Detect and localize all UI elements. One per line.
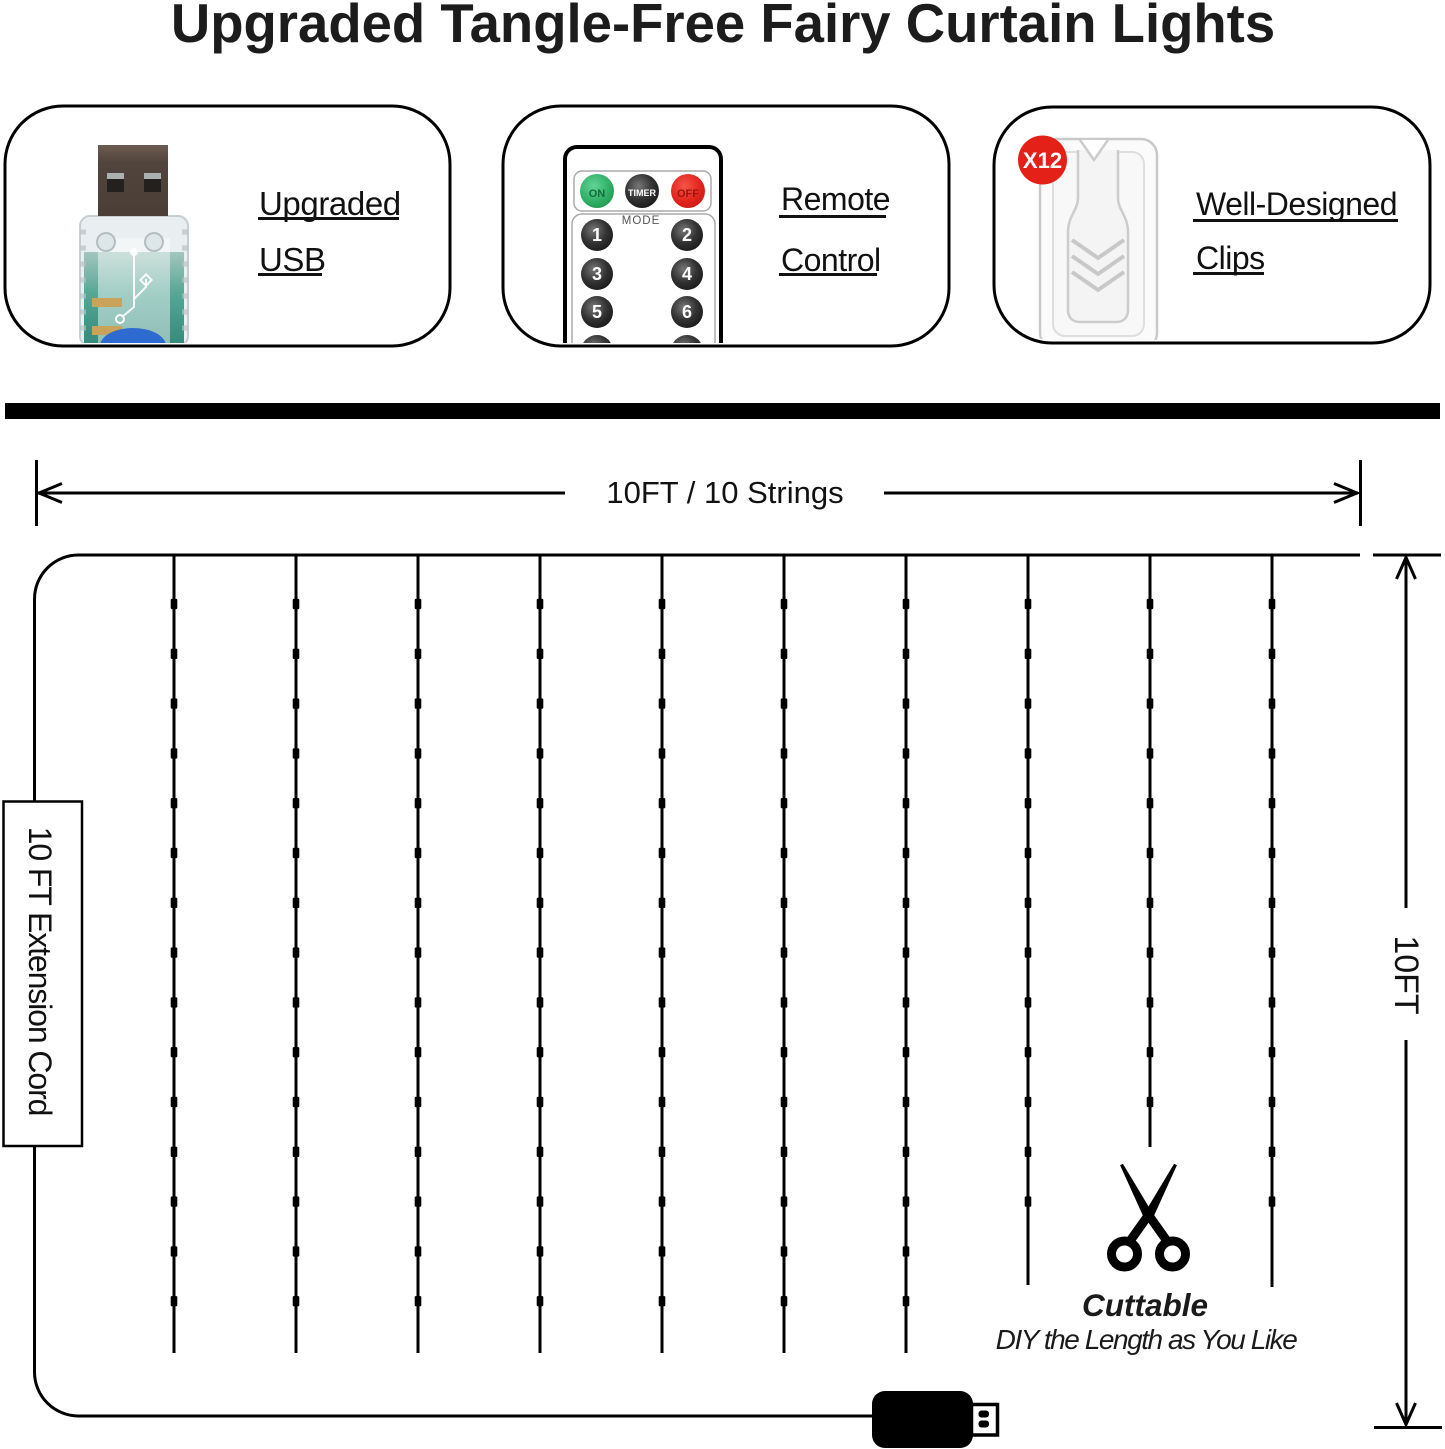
svg-text:Upgraded Tangle-Free Fairy Cur: Upgraded Tangle-Free Fairy Curtain Light… [171,0,1275,54]
svg-text:DIY the Length as You Like: DIY the Length as You Like [996,1324,1298,1355]
svg-text:2: 2 [682,225,692,245]
svg-text:10FT / 10 Strings: 10FT / 10 Strings [606,475,843,510]
svg-text:1: 1 [592,225,602,245]
svg-text:10 FT Extension Cord: 10 FT Extension Cord [22,827,58,1116]
svg-text:3: 3 [592,264,602,284]
svg-text:Well-Designed: Well-Designed [1196,186,1397,222]
svg-text:Remote: Remote [781,181,890,217]
svg-text:5: 5 [592,302,602,322]
svg-text:10FT: 10FT [1387,935,1425,1014]
svg-text:OFF: OFF [677,188,699,200]
svg-text:Cuttable: Cuttable [1082,1287,1208,1323]
svg-text:4: 4 [682,264,692,284]
svg-text:ON: ON [589,188,606,200]
svg-text:MODE: MODE [622,215,661,227]
svg-text:Upgraded: Upgraded [259,185,401,222]
svg-text:TIMER: TIMER [628,188,656,198]
svg-text:6: 6 [682,302,692,322]
svg-text:Control: Control [781,242,881,278]
svg-text:X12: X12 [1023,148,1062,173]
svg-text:USB: USB [259,241,326,278]
svg-text:Clips: Clips [1196,240,1265,276]
